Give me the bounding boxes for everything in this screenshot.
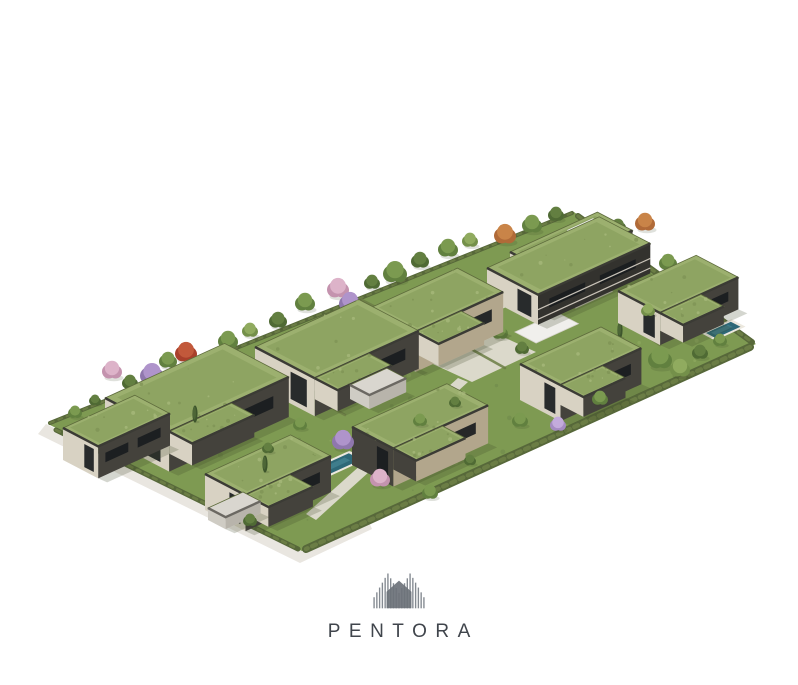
- pentora-logo: PENTORA: [0, 564, 798, 643]
- render-canvas: PENTORA: [0, 0, 798, 685]
- pentora-wordmark: PENTORA: [328, 621, 479, 643]
- pentora-logo-mark-icon: [370, 564, 428, 612]
